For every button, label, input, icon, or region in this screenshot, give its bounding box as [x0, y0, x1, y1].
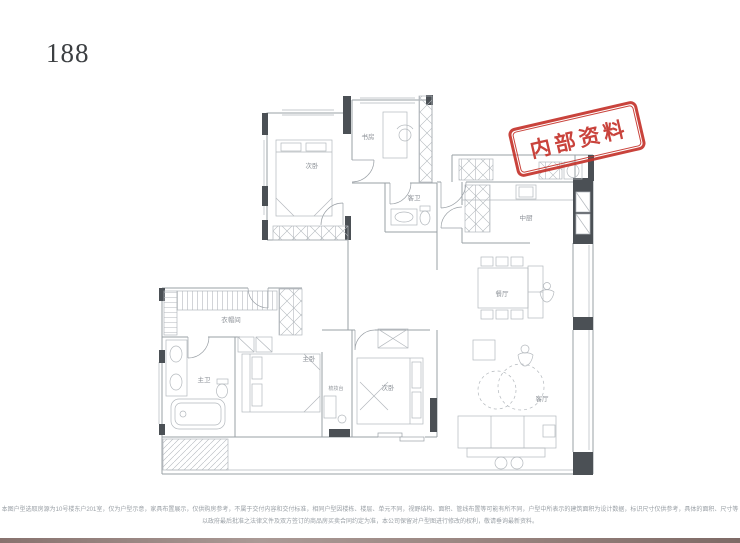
- living-room-furniture: [458, 340, 556, 469]
- dining-table: [478, 257, 554, 319]
- footer-bar: [0, 538, 740, 543]
- room-label-kitchen: 中厨: [520, 213, 534, 222]
- dressing-table-furniture: [324, 396, 346, 423]
- master-bath-fixtures: [166, 340, 228, 429]
- page: 188: [0, 0, 740, 543]
- study-desk: [383, 112, 413, 158]
- disclaimer-line-1: 本图户型选取房源为10号楼东户201室，仅为户型示意，家具布置展示，仅供购房参考…: [0, 504, 740, 516]
- floor-plan: 次卧 书房 客卫 中厨 餐厅 衣帽间 主卫 主卧 梳妆台 次卧 客厅: [0, 0, 740, 543]
- room-label-master-bath: 主卫: [198, 375, 212, 384]
- room-label-living: 客厅: [536, 394, 550, 403]
- bed-bottom-bedroom: [357, 329, 423, 424]
- guest-bath-fixtures: [391, 206, 430, 225]
- hatch-strips: [163, 96, 562, 470]
- disclaimer: 本图户型选取房源为10号楼东户201室，仅为户型示意，家具布置展示，仅供购房参考…: [0, 504, 740, 528]
- disclaimer-line-2: 以政府最后批准之法律文件及双方签订的商品房买卖合同约定为准，本公司保留对户型图进…: [0, 516, 740, 528]
- room-label-cloakroom: 衣帽间: [221, 315, 241, 324]
- room-label-dressing-table: 梳妆台: [328, 385, 343, 392]
- bed-top-bedroom: [276, 140, 332, 216]
- room-label-guest-bath: 客卫: [408, 193, 422, 202]
- room-label-bedroom-top: 次卧: [306, 161, 320, 170]
- master-bed: [238, 337, 320, 412]
- room-label-master-bedroom: 主卧: [303, 354, 317, 363]
- room-label-dining: 餐厅: [496, 289, 510, 298]
- room-label-study: 书房: [362, 132, 375, 141]
- room-label-bedroom-bottom: 次卧: [382, 383, 396, 392]
